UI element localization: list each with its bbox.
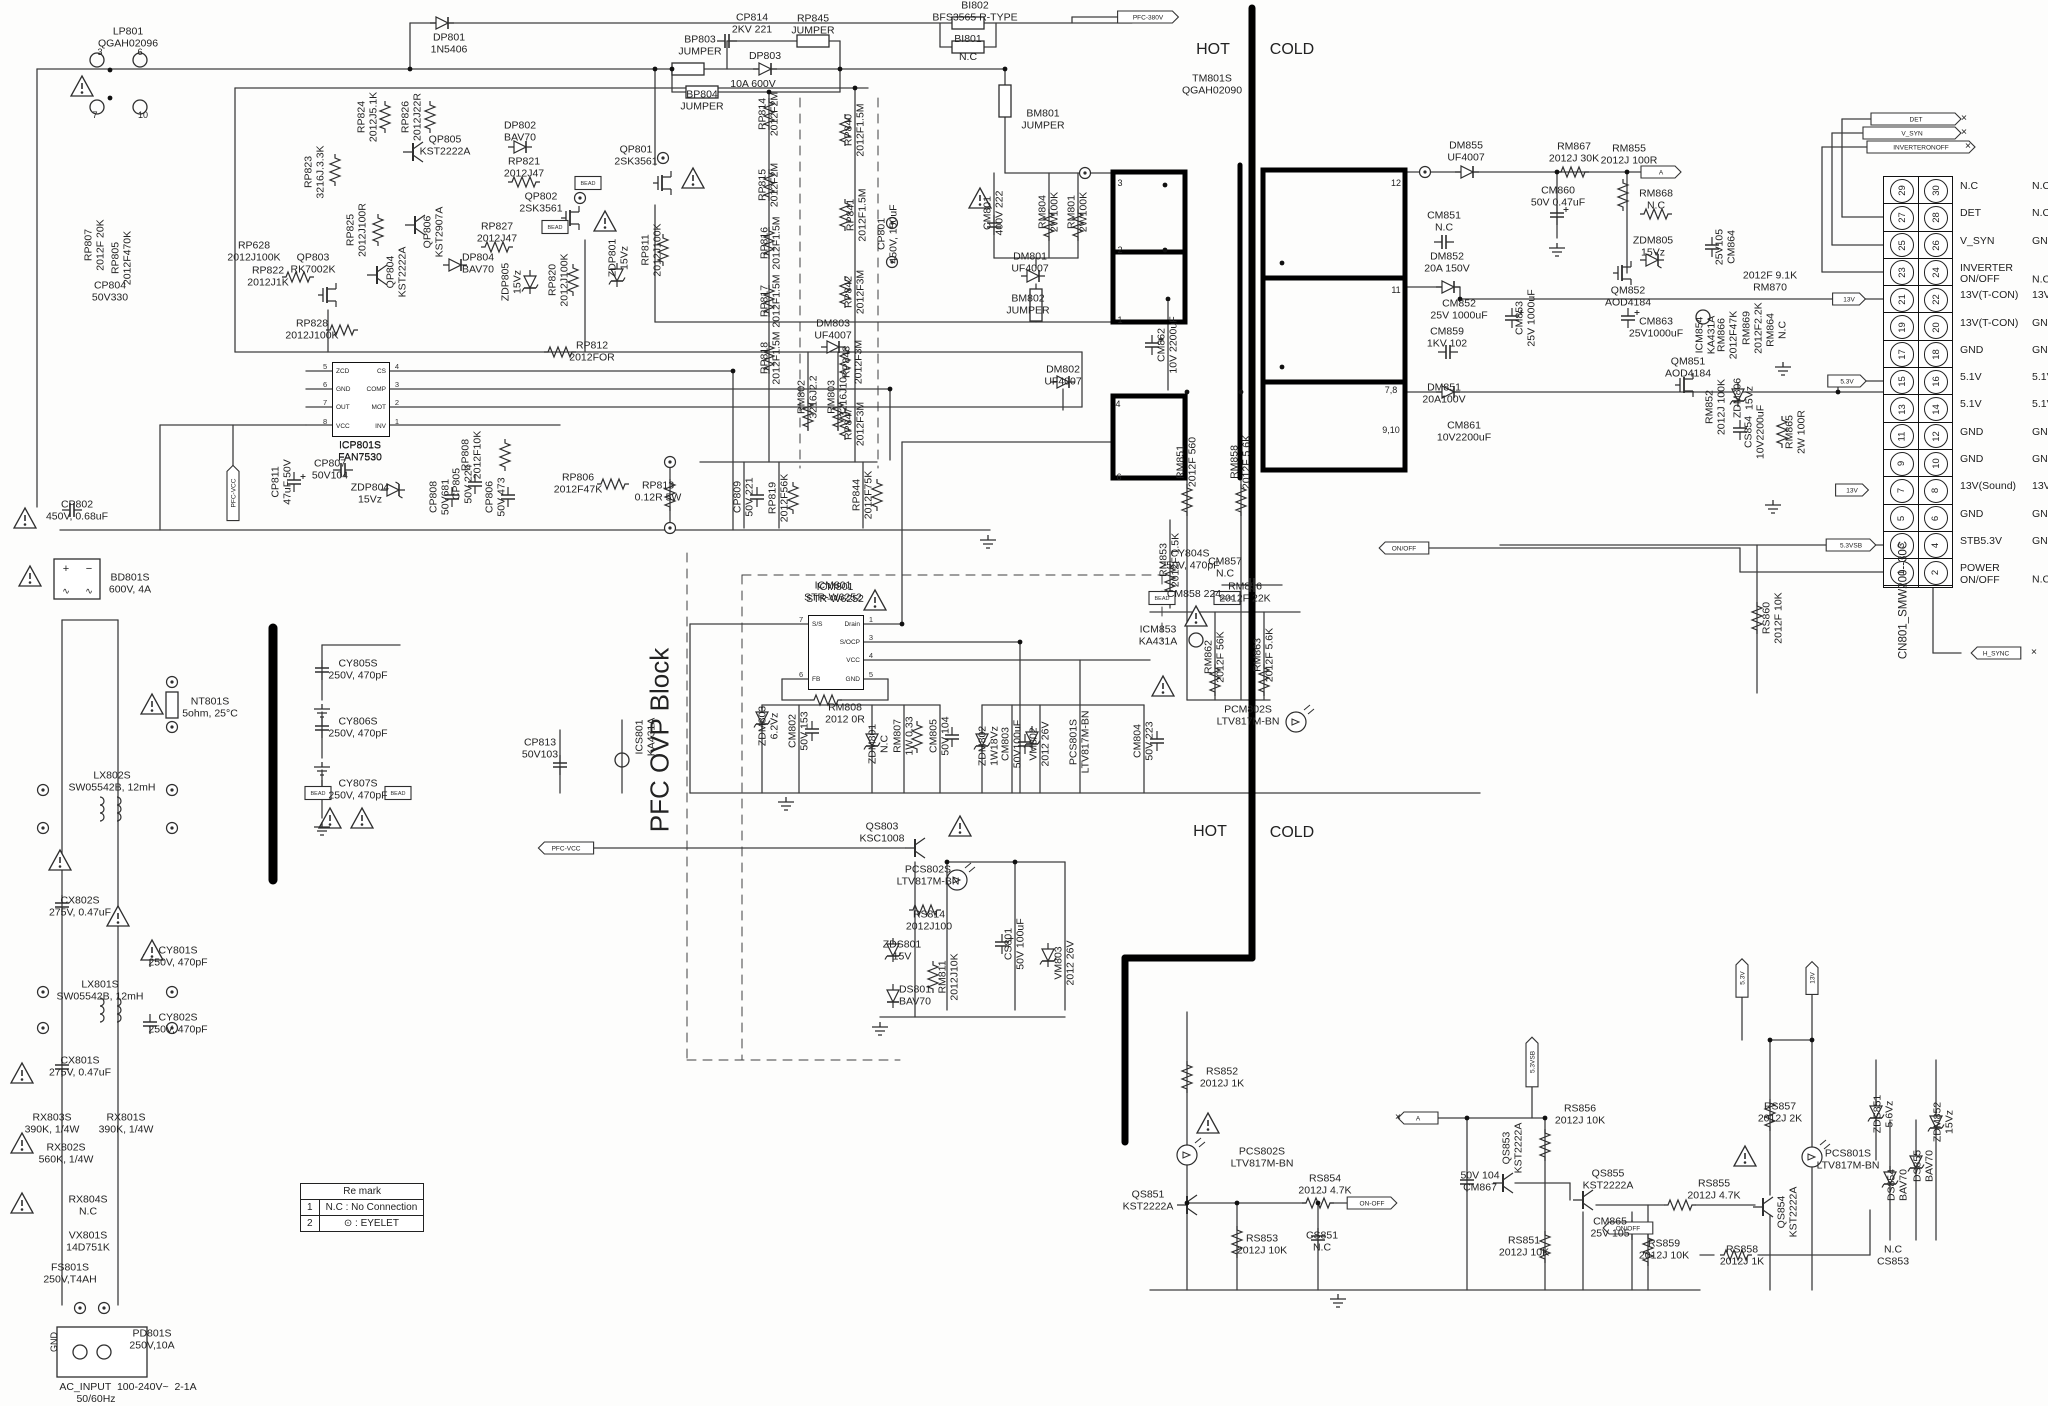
schematic-label: AC_INPUT 100-240V~ 2-1A (59, 1382, 196, 1394)
schematic-label: QS854 KST2222A (1776, 1187, 1800, 1238)
schematic-label: CY801S 250V, 470pF (148, 945, 207, 969)
connector-pin: 6 (1924, 506, 1948, 530)
remark-table: Re mark 1N.C : No Connection2⊙ : EYELET (300, 1183, 424, 1232)
schematic-label: CM804 50V 223 (1132, 721, 1156, 760)
trect-symbol (1113, 172, 1185, 252)
schematic-label: BI802 BFS3565 R-TYPE (932, 0, 1017, 24)
svg-text:BEAD: BEAD (311, 791, 326, 797)
opto-symbol (1177, 1138, 1205, 1165)
warn-symbol (594, 211, 616, 231)
schematic-label: 3 (97, 47, 102, 57)
schematic-label: RP818 2012F1.5M (759, 331, 783, 384)
schematic-label: N.C (959, 52, 977, 64)
connector-left-label: 5.1V (1960, 399, 2032, 411)
schematic-label: PCS801S LTV817M-BN (1817, 1148, 1880, 1172)
connector-pin: 17 (1890, 342, 1914, 366)
connector-pin: 11 (1890, 424, 1914, 448)
eyelet-symbol (38, 987, 49, 998)
schematic-label: CP809 50V 221 (732, 477, 756, 516)
remark-cell: N.C : No Connection (319, 1200, 424, 1216)
connector-right-label: 5.1V (2032, 371, 2048, 383)
remark-cell: 2 (301, 1216, 320, 1232)
schematic-label: ZDM805 15Vz (1633, 235, 1673, 259)
schematic-label: RM808 2012 0R (825, 702, 865, 726)
schematic-label: RS859 2012J 10K (1639, 1238, 1689, 1262)
schematic-label: ZDP804 15Vz (351, 482, 390, 506)
schematic-label: CM860 50V 0.47uF (1531, 185, 1585, 209)
eyelet-symbol (167, 987, 178, 998)
eyelet-symbol (167, 722, 178, 733)
jmp-symbol (999, 85, 1011, 117)
net-flag: DET (1871, 113, 1961, 125)
connector-body: 2930N.CN.C2728DETN.C2526V_SYNGND2324INVE… (1883, 176, 1953, 588)
gnd-symbol (872, 1022, 888, 1035)
schematic-label: BI801 (954, 34, 981, 46)
schematic-label: BM802 JUMPER (1006, 293, 1049, 317)
dot-symbol (1235, 1201, 1240, 1206)
dot-symbol (1163, 183, 1168, 188)
warn-symbol (11, 1193, 33, 1213)
schematic-label: RM802 3216J2.2 (796, 375, 820, 418)
eyelet-symbol (38, 1023, 49, 1034)
dot-symbol (108, 68, 113, 73)
schematic-label: CS851 N.C (1306, 1230, 1338, 1254)
ic-pin-number: 4 (869, 651, 873, 660)
diode-symbol (1436, 281, 1460, 293)
diode-symbol (1455, 166, 1479, 178)
svg-text:PFC-VCC: PFC-VCC (231, 478, 238, 507)
schematic-label: CS801 50V 100uF (1003, 918, 1027, 969)
ic-pin-number: 5 (323, 362, 327, 371)
schematic-label: RS860 2012F 10K (1761, 592, 1785, 643)
schematic: BEADBEADBEADBEADBEADBEADPFC-380VPFC-VCCP… (0, 0, 2048, 1406)
dot-symbol (1163, 248, 1168, 253)
eyelet-symbol (167, 823, 178, 834)
connector-row-label: 13V(T-CON)13V(T-CON) (1960, 290, 2048, 302)
ic-title: ICP801S FAN7530 (338, 439, 382, 463)
connector-right-label: GND (2032, 344, 2048, 356)
schematic-label: CY806S 250V, 470pF (328, 716, 387, 740)
connector-left-label: INVERTER ON/OFF (1960, 263, 2032, 286)
connector-divider (1918, 177, 1919, 587)
schematic-label: 10A 600V (730, 79, 776, 91)
schematic-label: RM869 2012F2.2K (1741, 302, 1765, 353)
schematic-label: LX802S SW05542B, 12mH (69, 770, 156, 794)
schematic-label: RM867 2012J 30K (1549, 141, 1599, 165)
connector-left-label: 5.1V (1960, 372, 2032, 384)
schematic-label: DP802 BAV70 (504, 120, 536, 144)
connector-pin: 15 (1890, 370, 1914, 394)
schematic-label: RP811 2012J100K (640, 223, 664, 276)
schematic-label: CM802 50V 153 (787, 711, 811, 750)
jmp-symbol (797, 35, 829, 47)
ic-pin-number: 4 (395, 362, 399, 371)
mosfet-symbol (653, 171, 671, 195)
svg-text:5.3VSB: 5.3VSB (1840, 543, 1862, 550)
warn-symbol (1185, 606, 1207, 626)
schematic-label: RX802S 560K, 1/4W (39, 1142, 94, 1166)
gnd-symbol (980, 535, 996, 548)
connector-pin: 10 (1924, 452, 1948, 476)
net-flag: A (1398, 1112, 1438, 1124)
connector-pin-number: 26 (1930, 240, 1941, 251)
warn-symbol (1152, 676, 1174, 696)
schematic-label: RM807 1W 0.33 (892, 716, 916, 755)
connector-row-label: V_SYNGND (1960, 236, 2048, 248)
schematic-label: LX801S SW05542B, 12mH (57, 979, 144, 1003)
eyelet-symbol (38, 823, 49, 834)
schematic-label: CM863 25V1000uF (1629, 316, 1683, 340)
remark-row: 1N.C : No Connection (301, 1200, 424, 1216)
schematic-label: PCM802S LTV817M-BN (1217, 704, 1280, 728)
schematic-label: ZDM803 6.2Vz (757, 706, 781, 746)
schematic-label: CP802 450V, 0.68uF (46, 499, 108, 523)
connector-pin: 24 (1924, 260, 1948, 284)
schematic-label: CP806 50V 473 (484, 477, 508, 516)
schematic-label: CM859 1KV 102 (1427, 326, 1467, 350)
schematic-label: RP807 2012F 20K (83, 219, 107, 270)
dot-symbol (888, 387, 893, 392)
schematic-label: RM852 2012J 100K (1704, 379, 1728, 435)
connector-pin-number: 25 (1896, 240, 1907, 251)
net-flag: 13V (1833, 293, 1866, 305)
connector-pin: 4 (1924, 533, 1948, 557)
schematic-label: 12 (1391, 178, 1401, 188)
schematic-label: CM861 10V2200uF (1437, 420, 1491, 444)
schematic-label: GND (49, 1332, 59, 1352)
connector-pin: 5 (1890, 506, 1914, 530)
net-flag: V_SYN (1863, 127, 1961, 139)
dot-symbol (1465, 1116, 1470, 1121)
schematic-label: RP820 2012J100K (547, 253, 571, 306)
connector-pin: 27 (1890, 206, 1914, 230)
gnd-symbol (1775, 362, 1791, 375)
schematic-label: DM802 UF4007 (1044, 364, 1081, 388)
connector-pin-number: 20 (1930, 322, 1941, 333)
schematic-label: QP803 RK7002K (291, 252, 336, 276)
connector-pin: 7 (1890, 479, 1914, 503)
connector-pin: 18 (1924, 342, 1948, 366)
dot-symbol (1185, 1201, 1190, 1206)
connector-pin: 9 (1890, 452, 1914, 476)
dot-symbol (1768, 1038, 1773, 1043)
connector-pin-number: 19 (1896, 322, 1907, 333)
ic-pin-number: 3 (869, 633, 873, 642)
connector-pin-number: 12 (1930, 431, 1941, 442)
schematic-label: RP814 2012F2M (757, 92, 781, 136)
schematic-label: DP803 (749, 51, 781, 63)
warn-symbol (11, 1133, 33, 1153)
ic-pin-label: CS (377, 368, 386, 375)
gnd-symbol (1330, 1294, 1346, 1307)
connector-pin-number: 5 (1896, 516, 1907, 521)
schematic-label: BP804 JUMPER (680, 89, 723, 113)
schematic-label: RM862 2012F 56K (1203, 631, 1227, 682)
connector-pin: 22 (1924, 288, 1948, 312)
net-flag: PFC-VCC (227, 465, 239, 520)
rect-symbol (54, 559, 100, 599)
schematic-label: CS854 10V2200uF (1743, 405, 1767, 459)
bead-symbol: BEAD (385, 787, 411, 800)
svg-text:A: A (1659, 170, 1664, 177)
connector-pin-number: 7 (1896, 488, 1907, 493)
warn-symbol (11, 1063, 33, 1083)
connector-pin: 14 (1924, 397, 1948, 421)
svg-text:PFC-VCC: PFC-VCC (552, 846, 581, 853)
connector-left-label: GND (1960, 509, 2032, 521)
net-flag: 5.3V (1736, 959, 1748, 997)
schematic-label: QP805 KST2222A (420, 134, 471, 158)
ic-pin-label: MOT (372, 404, 386, 411)
schematic-label: DM855 UF4007 (1447, 140, 1484, 164)
svg-text:13V: 13V (1810, 972, 1817, 984)
dot-symbol (1836, 390, 1841, 395)
schematic-label: N.C CS853 (1877, 1244, 1909, 1268)
schematic-label: QM851 AOD4184 (1665, 356, 1711, 380)
net-flag: H_SYNC (1971, 647, 2021, 659)
schematic-label: COLD (1270, 824, 1314, 842)
connector-pin: 2 (1924, 561, 1948, 585)
ic-pin-number: 1 (869, 615, 873, 624)
connector-right-label: GND (2032, 426, 2048, 438)
ic-pin-label: INV (375, 423, 386, 430)
schematic-label: RS851 2012J 10K (1499, 1235, 1549, 1259)
dot-symbol (838, 67, 843, 72)
connector-row-label: STB5.3VGND (1960, 536, 2048, 548)
eyelet-symbol (665, 457, 676, 468)
schematic-label: RP805 2012F470K (110, 231, 134, 285)
schematic-label: CM862 10V 2200uF (1156, 316, 1180, 373)
ic-pin-number: 6 (799, 670, 803, 679)
dot-symbol (853, 86, 858, 91)
connector-pin-number: 14 (1930, 404, 1941, 415)
res-symbol (425, 101, 435, 133)
dot-symbol (1166, 297, 1171, 302)
schematic-label: RS858 2012J 1K (1720, 1244, 1764, 1268)
schematic-label: RS854 2012J 4.7K (1298, 1173, 1351, 1197)
schematic-label: RP821 2012J47 (504, 156, 544, 180)
net-flag: ON/OFF (1379, 542, 1429, 554)
connector-pin-number: 15 (1896, 376, 1907, 387)
connector-row-label: GNDGND (1960, 427, 2048, 439)
connector-pin: 23 (1890, 260, 1914, 284)
schematic-label: 2012F 9.1K RM870 (1743, 270, 1797, 294)
connector-left-label: GND (1960, 345, 2032, 357)
schematic-label: ZDM802 1W18Vz (977, 726, 1001, 766)
connector-pin-number: 8 (1930, 488, 1941, 493)
schematic-label: CP808 50V681 (428, 479, 452, 515)
jmp-symbol (672, 63, 704, 75)
connector-pin-number: 11 (1896, 431, 1907, 441)
ic-title: ICM801 STR-W6252 (806, 581, 864, 605)
schematic-label: RS814 2012J100 (906, 909, 952, 933)
schematic-label: QS853 KST2222A (1501, 1123, 1525, 1174)
schematic-label: DM852 20A 150V (1424, 251, 1470, 275)
svg-text:INVERTERONOFF: INVERTERONOFF (1893, 145, 1949, 152)
svg-text:A: A (1416, 1116, 1421, 1123)
schematic-label: CM851 N.C (1427, 210, 1461, 234)
dot-symbol (1018, 640, 1023, 645)
eyelet-symbol (1420, 167, 1431, 178)
trect-symbol (1263, 170, 1405, 278)
ic-pin-label: S/S (812, 621, 822, 628)
res-symbol (373, 214, 383, 246)
dot-symbol (108, 96, 113, 101)
schematic-label: QS851 KST2222A (1123, 1189, 1174, 1213)
schematic-label: CY805S 250V, 470pF (328, 658, 387, 682)
schematic-label: RS852 2012J 1K (1200, 1066, 1244, 1090)
diode-symbol (753, 63, 777, 75)
ic-pin-label: FB (812, 676, 820, 683)
svg-text:5.3V: 5.3V (1740, 971, 1747, 985)
cap-symbol (1434, 235, 1454, 249)
schematic-label: ICS801 KA431A (634, 718, 658, 757)
net-flag: A (1641, 166, 1681, 178)
schematic-label: RM856 2012F 22K (1219, 581, 1270, 605)
schematic-label: 50/60Hz (76, 1394, 115, 1406)
schematic-label: CP813 50V103 (522, 737, 558, 761)
schematic-label: RP845 JUMPER (791, 13, 834, 37)
connector-row-label: GNDGND (1960, 454, 2048, 466)
schematic-label: ZDS801 15V (883, 939, 922, 963)
schematic-label: QS855 KST2222A (1583, 1168, 1634, 1192)
eyelet-symbol (38, 785, 49, 796)
schematic-label: ✕ (2031, 649, 2038, 658)
diode-symbol (430, 17, 454, 29)
schematic-label: ✕ (1961, 129, 1968, 138)
warn-symbol (864, 590, 886, 610)
svg-text:5.3VSB: 5.3VSB (1530, 1051, 1537, 1073)
schematic-label: RP844 2012F75K (851, 471, 875, 519)
ic-pin-number: 5 (869, 670, 873, 679)
schematic-label: VX801S 14D751K (66, 1230, 110, 1254)
schematic-label: VM803 2012 26V (1053, 941, 1077, 986)
schematic-label: CM803 50V100uF (1000, 720, 1024, 768)
npn-symbol (905, 838, 925, 858)
connector-row-label: DETN.C (1960, 208, 2048, 220)
svg-text:5.3V: 5.3V (1840, 379, 1854, 386)
connector-pin: 25 (1890, 233, 1914, 257)
warn-symbol (71, 76, 93, 96)
connector-left-label: STB5.3V (1960, 536, 2032, 548)
connector-pin-number: 13 (1896, 404, 1907, 415)
connector-row-label: GNDGND (1960, 345, 2048, 357)
connector-pin: 28 (1924, 206, 1948, 230)
svg-text:DET: DET (1910, 117, 1923, 124)
schematic-label: RP828 2012J100K (285, 318, 338, 342)
schematic-label: RM801 2W100K (1066, 192, 1090, 232)
ic-pin-number: 7 (323, 398, 327, 407)
schematic-label: RM853 2012F 1.5K (1158, 533, 1182, 587)
gnd-symbol (778, 797, 794, 810)
net-flag: PFC-380V (1118, 11, 1179, 23)
remark-cell: ⊙ : EYELET (319, 1216, 424, 1232)
schematic-label: RP819 2012F56K (767, 474, 791, 522)
connector-right-label: GND (2032, 453, 2048, 465)
warn-symbol (949, 816, 971, 836)
svg-text:H_SYNC: H_SYNC (1983, 651, 2010, 658)
net-flag: 5.3VSB (1526, 1037, 1538, 1087)
schematic-label: RP812 2012FOR (569, 340, 615, 364)
schematic-label: CX802S 275V, 0.47uF (49, 895, 111, 919)
schematic-label: ZDP805 15Vz (500, 263, 524, 302)
res-symbol (380, 101, 390, 133)
connector-left-label: N.C (1960, 181, 2032, 193)
warn-symbol (1734, 1146, 1756, 1166)
schematic-label: 25V105 CM864 (1714, 229, 1738, 265)
svg-text:13V: 13V (1843, 297, 1855, 304)
schematic-label: CM805 50V 104 (928, 716, 952, 755)
schematic-label: RP806 2012F47K (554, 472, 602, 496)
schematic-label: ICM854 KA431A (1694, 316, 1718, 355)
connector-left-label: GND (1960, 427, 2032, 439)
schematic-label: RP840 2012F1.5M (843, 103, 867, 156)
schematic-label: RP628 2012J100K (227, 240, 280, 264)
schematic-label: CN801_SMW200--30C (1898, 541, 1911, 659)
dot-symbol (1555, 170, 1560, 175)
schematic-label: ZDP801 15Vz (607, 239, 631, 278)
schematic-label: RM868 N.C (1639, 188, 1673, 212)
connector-pin: 8 (1924, 479, 1948, 503)
svg-text:BEAD: BEAD (548, 225, 563, 231)
schematic-label: HOT (1196, 41, 1230, 59)
mosfet-symbol (318, 283, 336, 307)
schematic-label: RP808 2012F10K (460, 431, 484, 479)
connector-pin: 20 (1924, 315, 1948, 339)
schematic-label: BP803 JUMPER (678, 34, 721, 58)
ic-pin-label: ZCD (336, 368, 349, 375)
connector-right-label: N.C (2032, 574, 2048, 586)
connector-left-label: GND (1960, 454, 2032, 466)
connector-pin-number: 28 (1930, 213, 1941, 224)
schematic-label: BM801 JUMPER (1021, 108, 1064, 132)
ic-block: ZCD5GND6OUT7VCC8CS4COMP3MOT2INV1 (332, 362, 390, 437)
schematic-label: RM803 3216J10 (826, 377, 850, 417)
schematic-label: RM804 2W100K (1037, 192, 1061, 232)
connector-right-label: 13V(Sound) (2032, 480, 2048, 492)
connector-row-label: INVERTER ON/OFFN.C (1960, 263, 2048, 286)
ic-pin-label: VCC (846, 657, 860, 664)
bead-symbol: BEAD (305, 787, 331, 800)
mosfet-symbol (1613, 261, 1631, 285)
schematic-label: RP822 2012J1K (247, 265, 288, 289)
schematic-label: QP804 KST2222A (385, 247, 409, 298)
schematic-label: QS803 KSC1008 (860, 821, 905, 845)
circle-symbol (1189, 633, 1203, 647)
eyelet-symbol (167, 785, 178, 796)
schematic-label: ∿ (85, 586, 93, 596)
connector-pin: 21 (1890, 288, 1914, 312)
dot-symbol (1003, 67, 1008, 72)
schematic-label: PD801S 250V,10A (129, 1328, 174, 1352)
schematic-label: CP804 50V330 (92, 280, 128, 304)
schematic-label: 7 (92, 110, 97, 120)
schematic-label: ZDM852 15Vz (1932, 1102, 1956, 1142)
schematic-label: DP804 BAV70 (462, 252, 494, 276)
dot-symbol (900, 622, 905, 627)
connector-pin: 26 (1924, 233, 1948, 257)
opto-symbol (1286, 705, 1314, 732)
dot-symbol (1280, 365, 1285, 370)
net-flag: 13V (1806, 962, 1818, 995)
connector-pin: 29 (1890, 179, 1914, 203)
schematic-label: CY807S 250V, 470pF (328, 778, 387, 802)
schematic-label: 50V 104 CM867 (1460, 1170, 1499, 1194)
schematic-label: ICM853 KA431A (1139, 624, 1178, 648)
connector-row-label: 5.1V5.1V (1960, 372, 2048, 384)
schematic-label: QP806 KST2907A (422, 207, 446, 258)
dot-symbol (1185, 390, 1190, 395)
